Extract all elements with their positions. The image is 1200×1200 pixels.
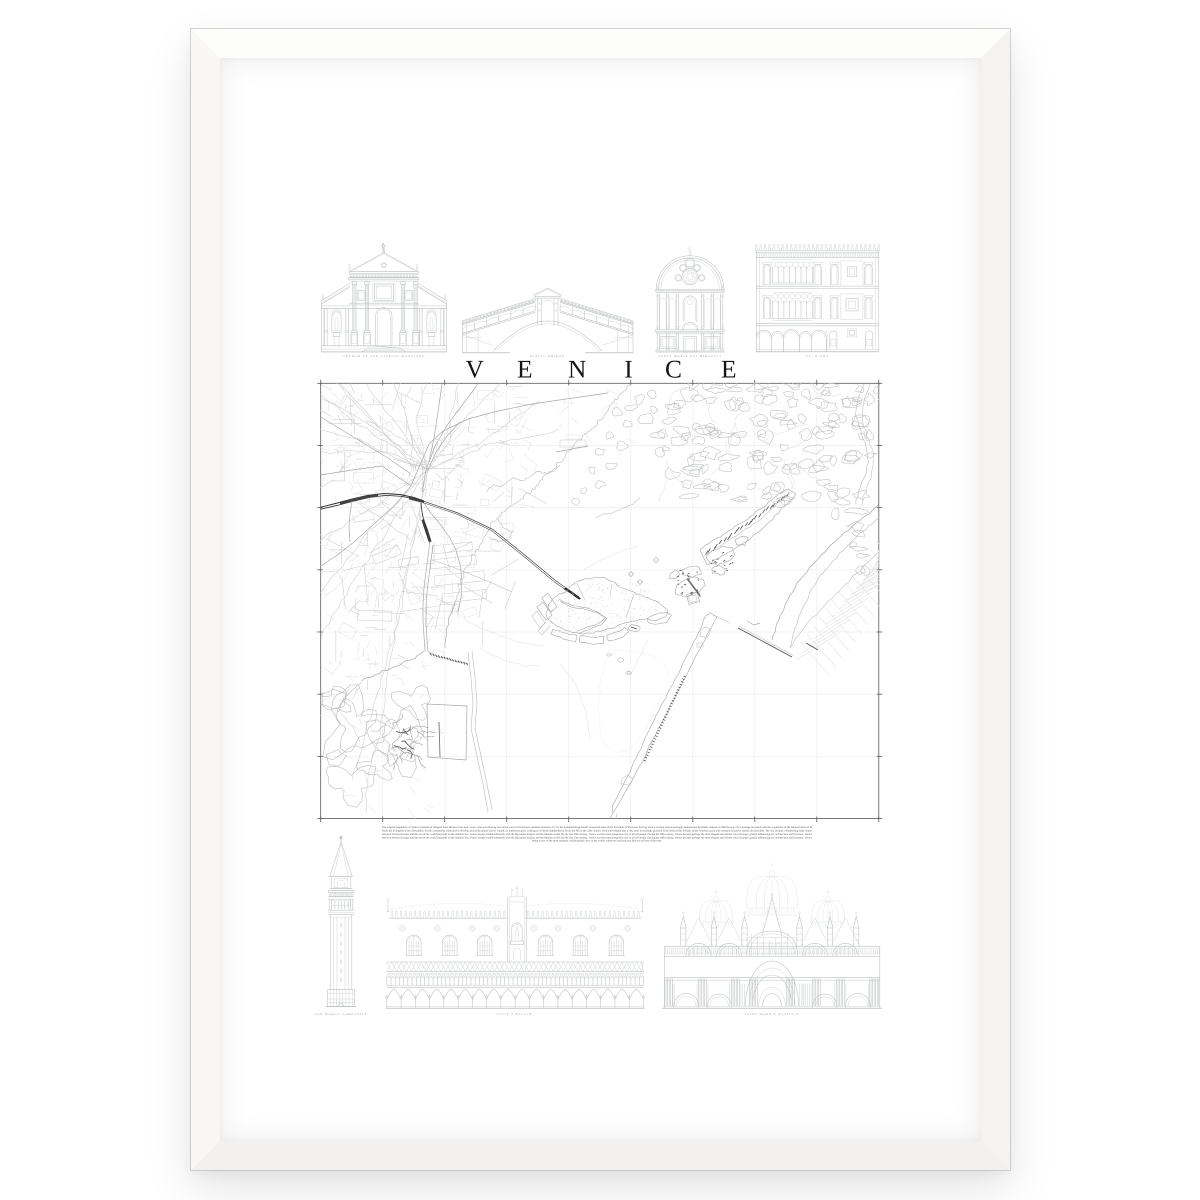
svg-text:CHURCH OF SAN GIORGIO MAGGIORE: CHURCH OF SAN GIORGIO MAGGIORE xyxy=(343,355,425,358)
svg-text:SAN MARCO CAMPANILE: SAN MARCO CAMPANILE xyxy=(315,1013,368,1016)
svg-text:RIALTO BRIDGE: RIALTO BRIDGE xyxy=(530,355,565,358)
svg-text:C: C xyxy=(665,355,682,383)
svg-text:N: N xyxy=(568,355,586,383)
svg-text:DOGE’S PALACE: DOGE’S PALACE xyxy=(497,1013,532,1016)
svg-text:CA’ D’ORO: CA’ D’ORO xyxy=(806,355,829,358)
svg-text:SANTA MARIA DEI MIRACOLI: SANTA MARIA DEI MIRACOLI xyxy=(658,355,722,358)
svg-text:E: E xyxy=(721,355,737,383)
svg-text:E: E xyxy=(517,355,533,383)
svg-text:today is one of the most roman: today is one of the most romantic and be… xyxy=(532,840,662,843)
svg-text:V: V xyxy=(466,355,485,383)
svg-text:SAINT MARK’S BASILICA: SAINT MARK’S BASILICA xyxy=(744,1013,799,1016)
svg-text:I: I xyxy=(624,355,632,383)
